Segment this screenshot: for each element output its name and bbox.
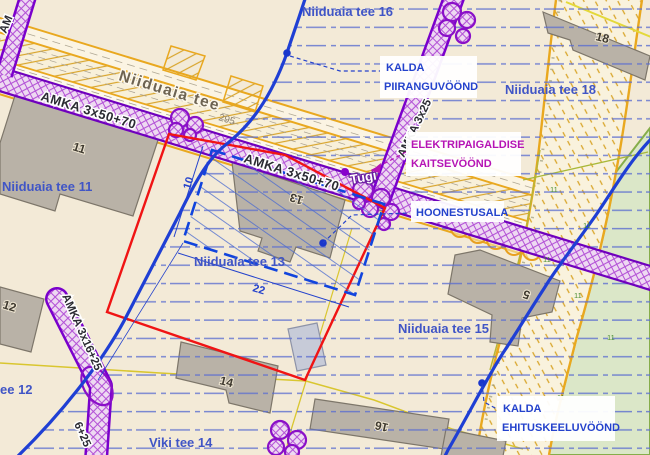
- callout-text: KALDA: [503, 403, 542, 415]
- plot-label-12-partial: ee 12: [0, 382, 33, 397]
- svg-text:11: 11: [550, 185, 558, 194]
- svg-text:11: 11: [574, 291, 582, 300]
- support-point: [341, 168, 349, 176]
- plot-label-15: Niiduaia tee 15: [398, 321, 489, 336]
- detail-plan-map: Niiduaia tee 16 Niiduaia tee 18 Niiduaia…: [0, 0, 650, 455]
- svg-text:11: 11: [607, 333, 615, 342]
- callout-text: EHITUSKEELUVÖÖND: [502, 421, 620, 434]
- map-canvas[interactable]: Niiduaia tee 16 Niiduaia tee 18 Niiduaia…: [0, 0, 650, 455]
- callout-text: HOONESTUSALA: [416, 207, 508, 219]
- leader-dot: [283, 49, 291, 57]
- street-label-viki-tee: Viki tee 14: [149, 435, 213, 450]
- callout-text: KALDA: [386, 62, 425, 74]
- plot-label-18: Niiduaia tee 18: [505, 82, 596, 97]
- callout-text: KAITSEVÖÖND: [411, 157, 492, 170]
- plot-label-11: Niiduaia tee 11: [2, 179, 92, 194]
- callout-text: PIIRANGUVÖÖND: [384, 80, 478, 93]
- plot-label-16: Niiduaia tee 16: [302, 4, 393, 19]
- svg-text:11: 11: [583, 221, 591, 230]
- plot-label-13: Niiduaia tee 13: [194, 254, 285, 269]
- callout-text: ELEKTRIPAIGALDISE: [411, 139, 524, 151]
- svg-text:11: 11: [543, 255, 551, 264]
